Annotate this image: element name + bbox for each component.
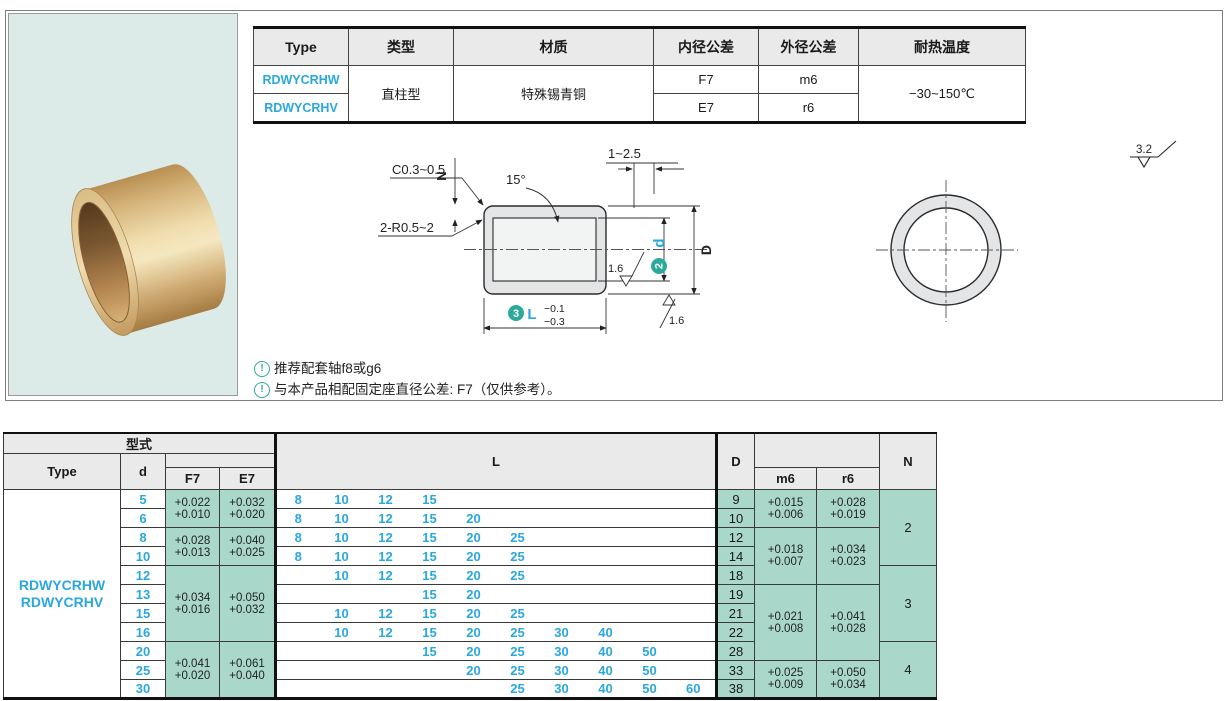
length-cell: 50: [628, 680, 672, 699]
outer-dia-cell: 18: [717, 566, 755, 585]
d-value-cell: 25: [121, 661, 166, 680]
length-cell: [408, 680, 452, 699]
d-value-cell: 6: [121, 509, 166, 528]
d-value-cell: 15: [121, 604, 166, 623]
bronze-bushing-image: [9, 14, 237, 393]
length-cell: 20: [452, 604, 496, 623]
r6-tolerance-cell: +0.028+0.019: [817, 490, 880, 528]
outer-tol-r6: r6: [759, 94, 859, 123]
length-cell: [628, 547, 672, 566]
category-value: 直柱型: [349, 66, 454, 123]
size-row-d5: RDWYCRHWRDWYCRHV5+0.022+0.010+0.032+0.02…: [4, 490, 937, 509]
tolerance-line: +0.009: [755, 679, 816, 691]
length-cell: [628, 490, 672, 509]
tolerance-line: +0.018: [755, 544, 816, 556]
d-value-cell: 5: [121, 490, 166, 509]
tolerance-line: +0.010: [166, 509, 219, 521]
length-cell: 12: [364, 623, 408, 642]
header-length: L: [276, 433, 717, 490]
m6-tolerance-cell: +0.021+0.008: [755, 585, 817, 661]
header-outer-tol-spacer: [755, 433, 880, 468]
outer-dia-cell: 10: [717, 509, 755, 528]
length-cell: 12: [364, 566, 408, 585]
header-d: d: [121, 454, 166, 490]
tolerance-line: +0.041: [166, 658, 219, 670]
heat-resistance-value: −30~150℃: [859, 66, 1026, 123]
f7-tolerance-cell: +0.041+0.020: [166, 642, 220, 699]
m6-tolerance-cell: +0.018+0.007: [755, 528, 817, 585]
spec-row-1: RDWYCRHW 直柱型 特殊锡青铜 F7 m6 −30~150℃: [254, 66, 1026, 94]
length-tol-lower: −0.3: [544, 316, 565, 328]
length-label: L: [527, 306, 536, 323]
length-cell: 10: [320, 547, 364, 566]
balloon-2-number: 2: [654, 263, 666, 269]
length-cell: [628, 509, 672, 528]
length-cell: [276, 585, 320, 604]
n-value-cell: 4: [880, 642, 937, 699]
length-cell: 12: [364, 509, 408, 528]
length-cell: 10: [320, 566, 364, 585]
length-cell: 15: [408, 509, 452, 528]
length-cell: [320, 585, 364, 604]
length-cell: 20: [452, 547, 496, 566]
length-cell: [276, 566, 320, 585]
length-cell: [540, 490, 584, 509]
outer-dia-cell: 33: [717, 661, 755, 680]
d-value-cell: 8: [121, 528, 166, 547]
length-cell: 12: [364, 528, 408, 547]
roughness-outer-label: 1.6: [669, 315, 684, 327]
length-cell: 20: [452, 566, 496, 585]
length-cell: [672, 623, 717, 642]
length-cell: [672, 509, 717, 528]
product-photo: [8, 13, 238, 396]
balloon-3-number: 3: [513, 308, 519, 320]
length-cell: [628, 566, 672, 585]
outer-dia-cell: 28: [717, 642, 755, 661]
tolerance-line: +0.025: [220, 547, 274, 559]
length-cell: [496, 490, 540, 509]
length-cell: 30: [540, 623, 584, 642]
d-value-cell: 20: [121, 642, 166, 661]
length-cell: 10: [320, 528, 364, 547]
spec-header-inner-tol: 内径公差: [654, 28, 759, 66]
tolerance-line: +0.040: [220, 535, 274, 547]
length-cell: [584, 509, 628, 528]
length-cell: [584, 566, 628, 585]
length-cell: [276, 680, 320, 699]
angle-label: 15°: [506, 172, 526, 187]
outer-dia-cell: 38: [717, 680, 755, 699]
tolerance-line: +0.032: [220, 497, 274, 509]
length-cell: [672, 528, 717, 547]
header-outer-dia: D: [717, 433, 755, 490]
tolerance-line: +0.050: [817, 667, 879, 679]
length-cell: [584, 528, 628, 547]
tolerance-line: +0.022: [166, 497, 219, 509]
length-cell: 30: [540, 680, 584, 699]
f7-tolerance-cell: +0.034+0.016: [166, 566, 220, 642]
length-cell: 20: [452, 585, 496, 604]
header-e7: E7: [220, 468, 276, 490]
outer-tol-m6: m6: [759, 66, 859, 94]
length-cell: 25: [496, 566, 540, 585]
length-cell: 30: [540, 642, 584, 661]
length-cell: 20: [452, 642, 496, 661]
length-cell: 60: [672, 680, 717, 699]
type-code-rdwycrhv: RDWYCRHV: [254, 94, 349, 123]
notes: ! 推荐配套轴f8或g6 ! 与本产品相配固定座直径公差: F7（仅供参考）。: [254, 358, 561, 400]
tolerance-line: +0.019: [817, 509, 879, 521]
tolerance-line: +0.028: [166, 535, 219, 547]
length-cell: [540, 604, 584, 623]
tolerance-line: +0.061: [220, 658, 274, 670]
spec-table: Type 类型 材质 内径公差 外径公差 耐热温度 RDWYCRHW 直柱型 特…: [253, 26, 1026, 124]
outer-dia-cell: 19: [717, 585, 755, 604]
note-text-2: 与本产品相配固定座直径公差: F7（仅供参考）。: [274, 379, 561, 400]
length-cell: [540, 566, 584, 585]
d-value-cell: 13: [121, 585, 166, 604]
length-cell: [364, 642, 408, 661]
length-cell: 15: [408, 642, 452, 661]
d-value-cell: 16: [121, 623, 166, 642]
inner-dia-callout: 2 d: [651, 238, 668, 274]
length-cell: [584, 585, 628, 604]
end-length-label: 1~2.5: [608, 146, 641, 161]
tolerance-line: +0.008: [755, 623, 816, 635]
length-cell: 20: [452, 509, 496, 528]
m6-tolerance-cell: +0.015+0.006: [755, 490, 817, 528]
f7-tolerance-cell: +0.028+0.013: [166, 528, 220, 566]
spec-header-outer-tol: 外径公差: [759, 28, 859, 66]
length-cell: 8: [276, 547, 320, 566]
size-table: 型式 L D N Type d F7 E7 m6 r6 RDWYCRHWRDWY…: [3, 432, 937, 700]
length-cell: 25: [496, 661, 540, 680]
length-cell: 20: [452, 661, 496, 680]
outer-dia-cell: 21: [717, 604, 755, 623]
tolerance-line: +0.020: [166, 670, 219, 682]
length-cell: 25: [496, 642, 540, 661]
tolerance-line: +0.032: [220, 604, 274, 616]
inner-tol-f7: F7: [654, 66, 759, 94]
tolerance-line: +0.015: [755, 497, 816, 509]
tolerance-line: +0.034: [817, 544, 879, 556]
length-cell: 12: [364, 490, 408, 509]
length-cell: [628, 585, 672, 604]
length-cell: [672, 585, 717, 604]
d-value-cell: 30: [121, 680, 166, 699]
tolerance-line: +0.006: [755, 509, 816, 521]
length-cell: [672, 642, 717, 661]
length-cell: [628, 604, 672, 623]
length-cell: 30: [540, 661, 584, 680]
length-tol-upper: −0.1: [544, 303, 565, 315]
length-cell: 12: [364, 547, 408, 566]
technical-drawing: C0.3~0.5 2-R0.5~2 15° 1~2.5 N D 2 d 3 L …: [376, 136, 1076, 361]
length-cell: 8: [276, 528, 320, 547]
length-cell: [584, 490, 628, 509]
r6-tolerance-cell: +0.050+0.034: [817, 661, 880, 699]
length-cell: [276, 604, 320, 623]
length-cell: [672, 604, 717, 623]
length-cell: 20: [452, 528, 496, 547]
tolerance-line: +0.021: [755, 611, 816, 623]
length-cell: 50: [628, 661, 672, 680]
top-section: Type 类型 材质 内径公差 外径公差 耐热温度 RDWYCRHW 直柱型 特…: [5, 10, 1223, 401]
tolerance-line: +0.007: [755, 556, 816, 568]
length-cell: 12: [364, 604, 408, 623]
tolerance-line: +0.013: [166, 547, 219, 559]
length-cell: [496, 509, 540, 528]
length-cell: [672, 661, 717, 680]
header-inner-tol-spacer: [166, 454, 276, 468]
outer-dia-cell: 14: [717, 547, 755, 566]
length-cell: [276, 642, 320, 661]
length-cell: [320, 680, 364, 699]
e7-tolerance-cell: +0.040+0.025: [220, 528, 276, 566]
tolerance-line: +0.023: [817, 556, 879, 568]
length-cell: [540, 547, 584, 566]
length-cell: 15: [408, 490, 452, 509]
tolerance-line: +0.034: [166, 592, 219, 604]
length-cell: 10: [320, 604, 364, 623]
m6-tolerance-cell: +0.025+0.009: [755, 661, 817, 699]
length-cell: [364, 661, 408, 680]
length-cell: 25: [496, 680, 540, 699]
tolerance-line: +0.025: [755, 667, 816, 679]
r6-tolerance-cell: +0.034+0.023: [817, 528, 880, 585]
inner-dia-label: d: [651, 238, 668, 247]
length-cell: [320, 661, 364, 680]
length-cell: 15: [408, 528, 452, 547]
header-m6: m6: [755, 468, 817, 490]
e7-tolerance-cell: +0.032+0.020: [220, 490, 276, 528]
length-cell: 15: [408, 547, 452, 566]
type-code-rdwycrhw: RDWYCRHW: [254, 66, 349, 94]
length-cell: [408, 661, 452, 680]
corner-radius-label: 2-R0.5~2: [380, 220, 434, 235]
length-cell: [584, 604, 628, 623]
e7-tolerance-cell: +0.050+0.032: [220, 566, 276, 642]
length-cell: [276, 661, 320, 680]
header-r6: r6: [817, 468, 880, 490]
header-f7: F7: [166, 468, 220, 490]
roughness-bore-label: 1.6: [608, 263, 623, 275]
header-n: N: [880, 433, 937, 490]
length-cell: [672, 547, 717, 566]
tolerance-line: +0.016: [166, 604, 219, 616]
n-value-cell: 3: [880, 566, 937, 642]
length-cell: 50: [628, 642, 672, 661]
e7-tolerance-cell: +0.061+0.040: [220, 642, 276, 699]
header-type: Type: [4, 454, 121, 490]
spec-header-heat: 耐热温度: [859, 28, 1026, 66]
length-cell: 40: [584, 661, 628, 680]
outer-dia-label: D: [698, 245, 714, 255]
length-cell: [276, 623, 320, 642]
length-cell: 15: [408, 604, 452, 623]
type-code: RDWYCRHW: [4, 577, 120, 594]
header-model: 型式: [4, 433, 276, 454]
d-value-cell: 10: [121, 547, 166, 566]
length-cell: 15: [408, 566, 452, 585]
length-cell: 20: [452, 623, 496, 642]
size-table-body: RDWYCRHWRDWYCRHV5+0.022+0.010+0.032+0.02…: [4, 490, 937, 699]
r6-tolerance-cell: +0.041+0.028: [817, 585, 880, 661]
tolerance-line: +0.028: [817, 497, 879, 509]
note-line-1: ! 推荐配套轴f8或g6: [254, 358, 561, 379]
spec-header-category: 类型: [349, 28, 454, 66]
length-cell: [628, 623, 672, 642]
length-cell: 8: [276, 490, 320, 509]
length-cell: [540, 585, 584, 604]
size-row-d8: 8+0.028+0.013+0.040+0.0258101215202512+0…: [4, 528, 937, 547]
type-code: RDWYCRHV: [4, 594, 120, 611]
wall-thickness-label: N: [434, 171, 449, 180]
length-cell: 40: [584, 623, 628, 642]
inner-tol-e7: E7: [654, 94, 759, 123]
length-cell: 15: [408, 623, 452, 642]
length-cell: 10: [320, 509, 364, 528]
length-cell: [496, 585, 540, 604]
length-cell: [584, 547, 628, 566]
length-cell: [672, 566, 717, 585]
spec-header-type: Type: [254, 28, 349, 66]
length-cell: 25: [496, 547, 540, 566]
length-cell: 25: [496, 623, 540, 642]
f7-tolerance-cell: +0.022+0.010: [166, 490, 220, 528]
tolerance-line: +0.034: [817, 679, 879, 691]
length-cell: [364, 585, 408, 604]
n-value-cell: 2: [880, 490, 937, 566]
length-cell: [628, 528, 672, 547]
size-table-section: 型式 L D N Type d F7 E7 m6 r6 RDWYCRHWRDWY…: [3, 432, 937, 700]
length-cell: 40: [584, 680, 628, 699]
length-cell: 25: [496, 528, 540, 547]
length-cell: 8: [276, 509, 320, 528]
length-callout: 3 L −0.1 −0.3: [508, 303, 565, 328]
length-cell: [452, 680, 496, 699]
tolerance-line: +0.041: [817, 611, 879, 623]
roughness-general-value: 3.2: [1136, 144, 1152, 156]
length-cell: 25: [496, 604, 540, 623]
length-cell: [540, 509, 584, 528]
length-cell: 15: [408, 585, 452, 604]
d-value-cell: 12: [121, 566, 166, 585]
note-exclamation-icon: !: [254, 361, 270, 377]
material-value: 特殊锡青铜: [454, 66, 654, 123]
length-cell: [540, 528, 584, 547]
roughness-general-symbol: 3.2: [1124, 139, 1188, 183]
tolerance-line: +0.020: [220, 509, 274, 521]
length-cell: [672, 490, 717, 509]
spec-header-material: 材质: [454, 28, 654, 66]
length-cell: 40: [584, 642, 628, 661]
type-codes-cell: RDWYCRHWRDWYCRHV: [4, 490, 121, 699]
length-cell: 10: [320, 490, 364, 509]
size-row-d25: 25202530405033+0.025+0.009+0.050+0.034: [4, 661, 937, 680]
note-text-1: 推荐配套轴f8或g6: [274, 358, 381, 379]
length-cell: [364, 680, 408, 699]
note-line-2: ! 与本产品相配固定座直径公差: F7（仅供参考）。: [254, 379, 561, 400]
outer-dia-cell: 9: [717, 490, 755, 509]
note-exclamation-icon: !: [254, 382, 270, 398]
tolerance-line: +0.050: [220, 592, 274, 604]
tolerance-line: +0.028: [817, 623, 879, 635]
tolerance-line: +0.040: [220, 670, 274, 682]
outer-dia-cell: 12: [717, 528, 755, 547]
length-cell: [320, 642, 364, 661]
size-row-d13: 13152019+0.021+0.008+0.041+0.028: [4, 585, 937, 604]
outer-dia-cell: 22: [717, 623, 755, 642]
length-cell: [452, 490, 496, 509]
length-cell: 10: [320, 623, 364, 642]
